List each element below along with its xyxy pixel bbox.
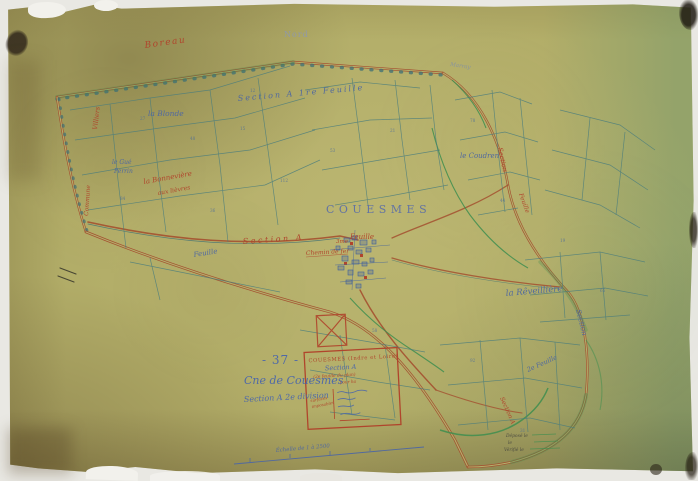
label-feuille-mid: Feuille (192, 247, 218, 259)
deposit-note-3: Vérifié le (504, 448, 524, 453)
parcel-number: 21 (390, 128, 396, 133)
label-le-coudren: le Coudren (460, 152, 500, 160)
parcel-number: 48 (190, 136, 196, 141)
label-villiers: Villiers (91, 106, 102, 131)
label-la-reveilliere: la Rêveillière (505, 283, 562, 299)
parcel-number: 65 (600, 288, 606, 293)
parcel-number: 27 (140, 116, 146, 121)
parcel-number: 12 (250, 88, 256, 93)
parcel-number: 44 (500, 198, 506, 203)
parcel-numbers: 27 48 15 84 36 112 53 21 78 44 19 65 92 … (120, 88, 606, 433)
label-section-a-1re-feuille: Section A 1re Feuille (237, 83, 364, 103)
scale-bar: Échelle de 1 à 2500 (234, 441, 424, 464)
parcel-number: 112 (280, 178, 288, 183)
parcel-number: 92 (470, 358, 476, 363)
scale-text: Échelle de 1 à 2500 (274, 441, 330, 454)
cartouche-handwriting (337, 390, 368, 415)
scanned-map-sheet: COUESMES (Indre et Loire) Section A (2e … (0, 0, 698, 480)
label-le-gue: le Gué (112, 159, 132, 166)
parcel-number: 15 (240, 126, 246, 131)
label-bonneviere: la Bonnevière (143, 170, 193, 186)
compass-label: Nord (284, 30, 309, 39)
label-feuille-right: Feuille (517, 191, 531, 214)
label-section-a-mid: Section A (243, 233, 305, 246)
label-la-blonde: la Blonde (148, 109, 184, 118)
label-couesmes-town: COUESMES (326, 203, 431, 216)
label-section-se: Section (574, 309, 588, 337)
parcel-number: 36 (210, 208, 216, 213)
map-linework: COUESMES (Indre et Loire) Section A (2e … (0, 0, 698, 480)
title-commune: Cne de Couesmes (244, 374, 344, 387)
parcel-number: 31 (520, 428, 526, 433)
parcel-number: 58 (372, 328, 378, 333)
parcel-number: 19 (560, 238, 566, 243)
parcel-number: 53 (330, 148, 336, 153)
label-section-a-br: Section A (498, 396, 516, 426)
deposit-note-2: le (508, 441, 512, 446)
sheet-index-marker (316, 314, 347, 346)
label-3me: 3me (336, 239, 349, 245)
title-number: - 37 - (262, 353, 299, 367)
label-perrin: Perrin (113, 168, 133, 175)
label-marray: Marray (449, 62, 472, 71)
cartouche: COUESMES (Indre et Loire) Section A (2e … (304, 348, 402, 430)
label-commune-edge: Commune (83, 184, 92, 216)
parcel-number: 84 (120, 196, 126, 201)
label-feuille-village: Feuille (349, 233, 374, 241)
cartouche-section: Section A (325, 363, 357, 373)
label-boreau: Boreau (143, 35, 187, 51)
label-feuille-2e: 2e Feuille (525, 353, 559, 374)
parcel-number: 78 (470, 118, 476, 123)
parcels-layer (70, 66, 655, 432)
deposit-note-1: Déposé le (505, 434, 528, 439)
